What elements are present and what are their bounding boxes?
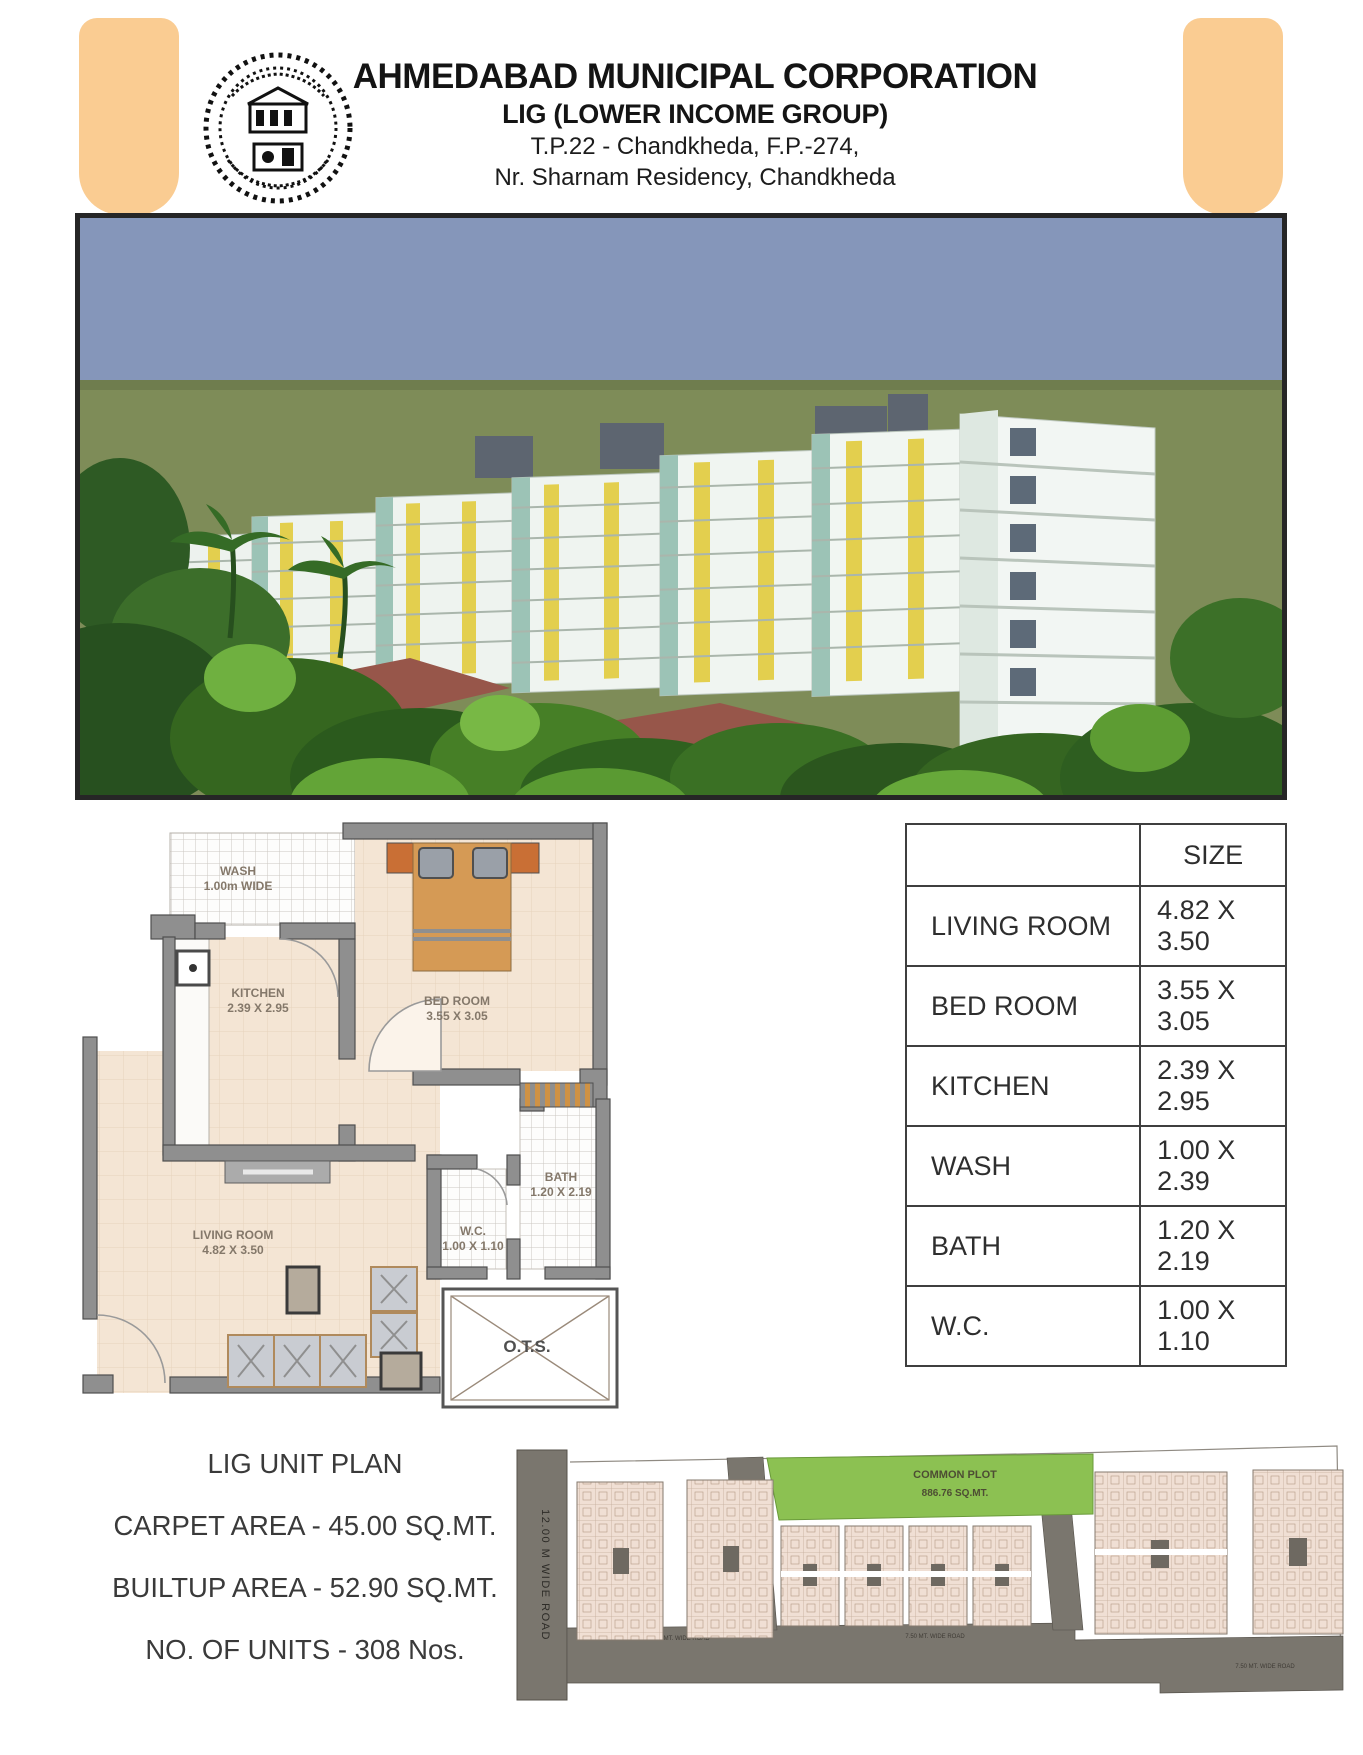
room-size-table: SIZE LIVING ROOM4.82 X 3.50 BED ROOM3.55… (905, 823, 1287, 1367)
builtup-area: BUILTUP AREA - 52.90 SQ.MT. (80, 1572, 530, 1604)
table-cell-size: 1.00 X 1.10 (1140, 1286, 1286, 1366)
size-column-header: SIZE (1140, 824, 1286, 886)
table-cell-size: 1.00 X 2.39 (1140, 1126, 1286, 1206)
table-cell-room: W.C. (906, 1286, 1140, 1366)
kitchen-size-label: 2.39 X 2.95 (227, 1001, 289, 1015)
header: AHMEDABAD MUNICIPAL CORPORATION LIG (LOW… (330, 56, 1060, 193)
bath-label: BATH (545, 1170, 577, 1184)
project-render-image (75, 213, 1287, 800)
table-cell-size: 3.55 X 3.05 (1140, 966, 1286, 1046)
living-room-label: LIVING ROOM (193, 1228, 274, 1242)
accent-bar-left (79, 18, 179, 215)
common-plot: COMMON PLOT 886.76 SQ.MT. (767, 1454, 1093, 1520)
table-cell-room: KITCHEN (906, 1046, 1140, 1126)
table-row: WASH1.00 X 2.39 (906, 1126, 1286, 1206)
road-label: 7.50 MT. WIDE ROAD (1235, 1664, 1295, 1670)
render-sky (80, 218, 1282, 388)
address-line-2: Nr. Sharnam Residency, Chandkheda (330, 162, 1060, 193)
left-road-label: 12.00 M WIDE ROAD (539, 1509, 551, 1641)
kitchen-label: KITCHEN (231, 986, 284, 1000)
bedroom-label: BED ROOM (424, 994, 490, 1008)
table-row: KITCHEN2.39 X 2.95 (906, 1046, 1286, 1126)
carpet-area: CARPET AREA - 45.00 SQ.MT. (80, 1510, 530, 1542)
page-subtitle: LIG (LOWER INCOME GROUP) (330, 98, 1060, 131)
wc-size-label: 1.00 X 1.10 (442, 1239, 504, 1253)
accent-bar-right (1183, 18, 1283, 215)
table-row: BATH1.20 X 2.19 (906, 1206, 1286, 1286)
table-cell-size: 4.82 X 3.50 (1140, 886, 1286, 966)
wash-label: WASH (220, 864, 256, 878)
site-layout-plan: 12.00 M WIDE ROAD 7.50 MT. WIDE ROAD 7.5… (515, 1440, 1345, 1710)
brochure-page: AHMEDABAD MUNICIPAL CORPORATION LIG (LOW… (0, 0, 1363, 1755)
address-line-1: T.P.22 - Chandkheda, F.P.-274, (330, 131, 1060, 162)
unit-summary: LIG UNIT PLAN CARPET AREA - 45.00 SQ.MT.… (80, 1448, 530, 1696)
table-cell-room: LIVING ROOM (906, 886, 1140, 966)
units-count: NO. OF UNITS - 308 Nos. (80, 1634, 530, 1666)
window-grill (520, 1083, 593, 1107)
living-room-size-label: 4.82 X 3.50 (202, 1243, 264, 1257)
road-label: 7.50 MT. WIDE ROAD (905, 1634, 965, 1640)
table-cell-room: WASH (906, 1126, 1140, 1206)
unit-floor-plan: WASH 1.00m WIDE KITCHEN 2.39 X 2.95 BED … (75, 815, 620, 1415)
table-cell-size: 2.39 X 2.95 (1140, 1046, 1286, 1126)
wash-size-label: 1.00m WIDE (204, 879, 273, 893)
ots-label: O.T.S. (503, 1337, 550, 1356)
bath-size-label: 1.20 X 2.19 (530, 1185, 592, 1199)
common-plot-area: 886.76 SQ.MT. (922, 1488, 989, 1499)
table-cell-room: BATH (906, 1206, 1140, 1286)
table-cell-size: 1.20 X 2.19 (1140, 1206, 1286, 1286)
table-row: W.C.1.00 X 1.10 (906, 1286, 1286, 1366)
page-title: AHMEDABAD MUNICIPAL CORPORATION (330, 56, 1060, 98)
table-row: LIVING ROOM4.82 X 3.50 (906, 886, 1286, 966)
bedroom-size-label: 3.55 X 3.05 (426, 1009, 488, 1023)
table-cell-room: BED ROOM (906, 966, 1140, 1046)
plan-title: LIG UNIT PLAN (80, 1448, 530, 1480)
wc-label: W.C. (460, 1224, 486, 1238)
common-plot-label: COMMON PLOT (913, 1469, 997, 1481)
table-row: BED ROOM3.55 X 3.05 (906, 966, 1286, 1046)
siteplan-left-road: 12.00 M WIDE ROAD (517, 1450, 567, 1700)
